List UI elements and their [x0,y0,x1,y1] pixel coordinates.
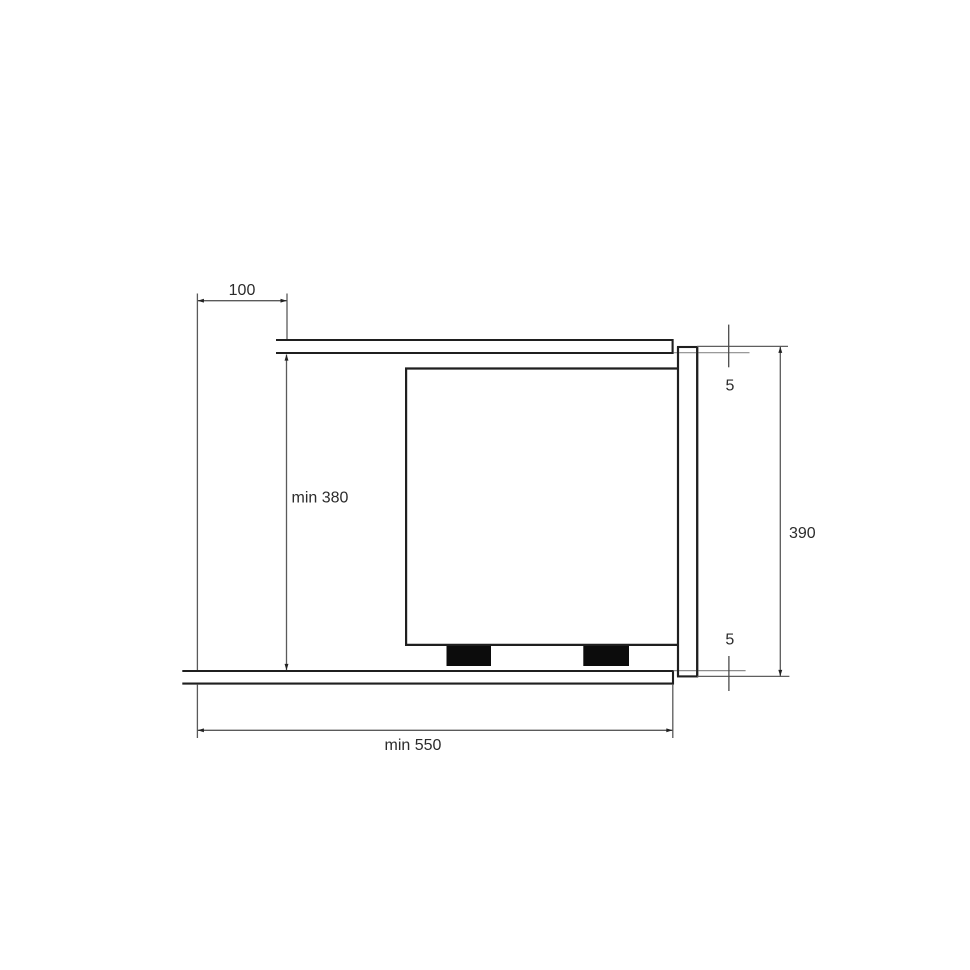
svg-text:min 550: min 550 [385,737,442,754]
svg-text:5: 5 [726,378,735,395]
svg-text:100: 100 [229,282,256,299]
svg-text:5: 5 [725,632,734,649]
svg-text:min 380: min 380 [292,490,349,507]
svg-text:390: 390 [789,525,816,542]
